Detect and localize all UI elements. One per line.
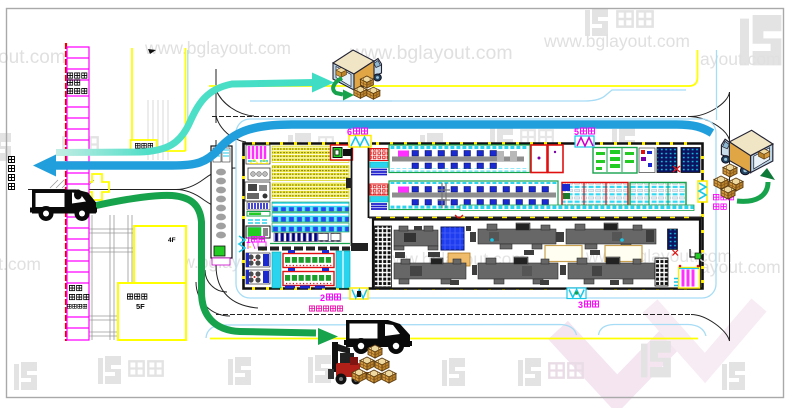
svg-text:www.bglayout.com: www.bglayout.com — [543, 31, 690, 51]
svg-text:ayout.com: ayout.com — [700, 49, 781, 69]
svg-text:5: 5 — [574, 127, 579, 137]
svg-text:ayout.com: ayout.com — [700, 257, 781, 277]
svg-text:6: 6 — [347, 127, 352, 137]
svg-text:www.bglayout.com: www.bglayout.com — [144, 38, 291, 58]
svg-text:2: 2 — [320, 293, 325, 303]
svg-text:3: 3 — [578, 300, 583, 310]
svg-text:1: 1 — [246, 235, 251, 245]
svg-text:ayout.com: ayout.com — [0, 47, 66, 68]
svg-text:4F: 4F — [168, 237, 176, 244]
svg-text:5F: 5F — [136, 302, 145, 311]
